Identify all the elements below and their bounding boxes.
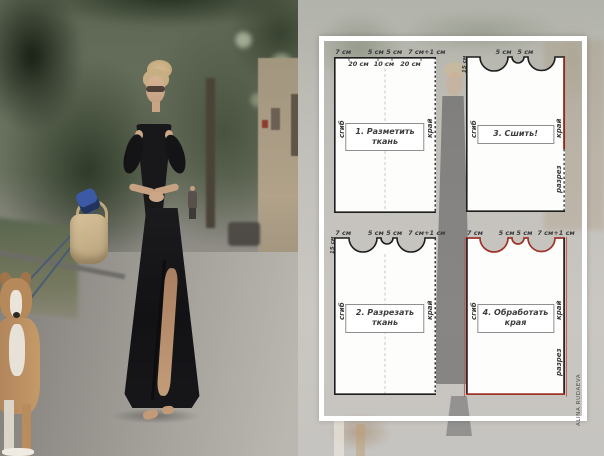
pinterest-style-collage: 7 см 5 см 5 см 7 см+1 см 20 см 10 см 20 …: [0, 0, 604, 456]
measure-label: 20 см: [400, 60, 420, 68]
measure-label: 5 см: [386, 229, 402, 237]
handbag: [70, 214, 108, 264]
step-title-box: 4. Обработать края: [477, 304, 554, 333]
step-title: 2. Разрезать: [347, 308, 422, 318]
measure-label: 5 см: [368, 48, 384, 56]
dog-chest: [9, 324, 25, 376]
step-title: 4. Обработать: [479, 308, 552, 318]
slit-label: разрез: [555, 349, 563, 377]
step-title-2: ткань: [347, 137, 422, 147]
step-title: 3. Сшить!: [479, 129, 552, 139]
depth-label: 15 см: [462, 56, 468, 73]
faded-dog-leg-2: [356, 424, 365, 456]
sunglasses: [146, 86, 165, 92]
measure-label: 7 см+1 см: [537, 229, 574, 237]
edge-label: край: [426, 119, 434, 138]
measure-label: 7 см: [335, 229, 351, 237]
measure-label: 5 см: [499, 229, 515, 237]
step-title-box: 2. Разрезать ткань: [345, 304, 424, 333]
faded-dog-leg: [334, 420, 344, 456]
pattern-step-1-mark-fabric: 7 см 5 см 5 см 7 см+1 см 20 см 10 см 20 …: [334, 57, 436, 213]
depth-label: 15 см: [330, 237, 336, 254]
measure-label: 7 см+1 см: [408, 229, 445, 237]
building-sign: [262, 120, 268, 128]
measure-label: 20 см: [348, 60, 368, 68]
measure-label: 5 см: [516, 229, 532, 237]
pattern-step-3-sew: 5 см 5 см 15 см сгиб край разрез 3. Сшит…: [466, 57, 565, 212]
watermark: ALINA RUDAEVA: [576, 374, 582, 426]
step-title-box: 1. Разметить ткань: [345, 123, 424, 152]
pattern-step-4-finish-edges: 7 см 5 см 5 см 7 см+1 см сгиб край разре…: [466, 238, 565, 395]
measure-label: 10 см: [374, 60, 394, 68]
sandal-right: [162, 405, 175, 414]
pattern-sheet-overlay: 7 см 5 см 5 см 7 см+1 см 20 см 10 см 20 …: [298, 0, 604, 456]
edge-label: край: [555, 300, 563, 319]
concrete-bollard: [228, 222, 260, 246]
step-title: 1. Разметить: [347, 127, 422, 137]
measure-label: 7 см: [335, 48, 351, 56]
dog: [0, 272, 56, 456]
measure-label: 5 см: [517, 48, 533, 56]
dog-paws: [2, 448, 34, 456]
slit-label: разрез: [555, 166, 563, 194]
step-title-box: 3. Сшить!: [477, 125, 554, 143]
step-title-2: ткань: [347, 318, 422, 328]
dog-front-leg: [4, 400, 14, 454]
step-title-2: края: [479, 318, 552, 328]
measure-label: 7 см: [467, 229, 483, 237]
measure-label: 5 см: [368, 229, 384, 237]
measure-label: 7 см+1 см: [408, 48, 445, 56]
neck: [152, 102, 160, 112]
building-window: [271, 108, 280, 130]
measure-label: 5 см: [386, 48, 402, 56]
dog-back-leg: [22, 404, 31, 454]
pattern-step-2-cut-fabric: 7 см 5 см 5 см 7 см+1 см 15 см сгиб край…: [334, 238, 436, 395]
measure-label: 5 см: [496, 48, 512, 56]
edge-label: край: [555, 118, 563, 137]
street-photo: [0, 0, 310, 456]
sandal-left: [142, 408, 159, 420]
edge-label: край: [426, 300, 434, 319]
hands: [149, 192, 164, 202]
